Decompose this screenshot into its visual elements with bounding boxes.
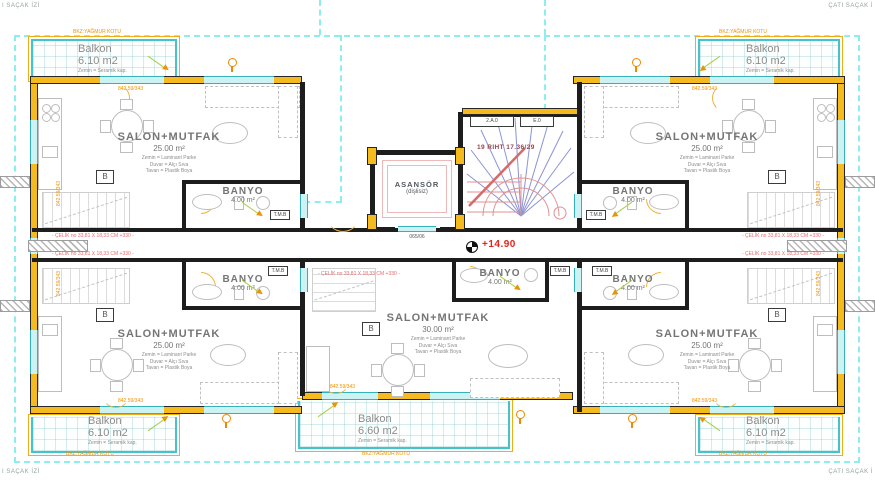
sofa <box>584 86 604 138</box>
closet-tag: T.M.B <box>270 210 290 220</box>
rain-note: BKZ:YAĞMUR KOTU <box>73 29 121 35</box>
wall-pillar <box>367 214 377 230</box>
window <box>204 406 274 414</box>
room-notes: Zemin = Laminant ParkeDuvar = Alçı SıvaT… <box>84 352 254 372</box>
dining-table <box>382 354 414 386</box>
balcony-label-bottom-center: Balkon6.60 m2Zemin = Seramik kap. <box>358 414 407 444</box>
window <box>30 120 38 164</box>
window <box>30 330 38 374</box>
room-area: 25.00 m² <box>622 341 792 350</box>
window <box>837 330 845 374</box>
stove-burner <box>42 104 51 113</box>
stove-burner <box>826 113 835 122</box>
elevation-label: +14.90 <box>482 239 516 250</box>
balcony-door-window <box>710 76 774 84</box>
balcony-label-bottom-left: Balkon6.10 m2Zemin = Seramik kap. <box>88 416 137 446</box>
wall-pillar <box>367 147 377 165</box>
downpipe-icon <box>628 414 637 423</box>
stove-burner <box>826 104 835 113</box>
steel-note: - ÇELİK no 33,81 X 18,33 CM +330 - <box>742 233 824 239</box>
bathroom-label-top-right: BANYO4.00 m² <box>593 186 673 204</box>
stove-burner <box>42 113 51 122</box>
sofa <box>278 86 298 138</box>
bathroom-wall <box>685 262 689 310</box>
kitchen-sink <box>817 324 833 336</box>
exterior-wall <box>462 108 582 115</box>
sofa <box>470 378 560 398</box>
bathroom-wall <box>182 180 186 232</box>
stove-burner <box>51 104 60 113</box>
rain-note: BKZ:YAĞMUR KOTU <box>719 451 767 457</box>
chair <box>391 386 404 397</box>
bathroom-wall <box>545 262 549 302</box>
bathroom-window <box>300 194 308 218</box>
balcony-label-bottom-right: Balkon6.10 m2Zemin = Seramik kap. <box>746 416 795 446</box>
bathroom-wall <box>577 306 689 310</box>
sofa <box>278 352 298 404</box>
bathroom-wall <box>452 298 549 302</box>
balcony-door-window <box>710 406 774 414</box>
room-name: SALON+MUTFAK <box>622 328 792 340</box>
window-dim: 842.59/343 <box>692 398 717 404</box>
kitchen-counter <box>306 346 330 392</box>
rain-note: BKZ:YAĞMUR KOTU <box>719 29 767 35</box>
bathroom-label-bottom-right: BANYO4.00 m² <box>593 274 673 292</box>
eave-stub-line <box>544 0 546 35</box>
wall-dim: 842.59/343 <box>816 271 822 296</box>
window-dim: 842.59/343 <box>118 398 143 404</box>
balcony-door-window <box>100 406 164 414</box>
bathroom-window <box>300 268 308 292</box>
chair <box>120 99 133 110</box>
corridor-wall <box>32 228 843 232</box>
downpipe-icon <box>516 410 525 419</box>
eave-label: I SAÇAK İZİ <box>2 3 40 9</box>
balcony-label-top-right: Balkon6.10 m2Zemin = Seramik kap. <box>746 44 795 74</box>
room-label-salon-bottom-left: SALON+MUTFAK 25.00 m² Zemin = Laminant P… <box>84 328 254 372</box>
balcony-door-window <box>100 76 164 84</box>
b-box: B <box>96 170 114 184</box>
eave-notch-line <box>544 35 546 110</box>
stove-burner <box>817 104 826 113</box>
kitchen-sink <box>42 324 58 336</box>
room-notes: Zemin = Laminant ParkeDuvar = Alçı SıvaT… <box>622 352 792 372</box>
door-tag: E.0 <box>520 116 554 127</box>
chair <box>110 381 123 392</box>
bathroom-window <box>574 268 582 292</box>
stair-direction-line <box>314 280 373 300</box>
stove-burner <box>51 113 60 122</box>
main-staircase <box>465 118 575 228</box>
bathroom-wall <box>182 306 305 310</box>
room-label-salon-top-left: SALON+MUTFAK 25.00 m² Zemin = Laminant P… <box>84 131 254 175</box>
room-notes: Zemin = Laminant ParkeDuvar = Alçı SıvaT… <box>622 155 792 175</box>
hatched-ledge <box>845 176 875 188</box>
bathroom-wall <box>577 180 689 184</box>
eave-stub-line <box>319 0 321 35</box>
closet-tag: T.M.B <box>592 266 612 276</box>
eave-label: ÇATI SAÇAK İ <box>828 3 873 9</box>
balcony-label-top-left: Balkon6.10 m2Zemin = Seramik kap. <box>78 44 127 74</box>
room-label-salon-bottom-right: SALON+MUTFAK 25.00 m² Zemin = Laminant P… <box>622 328 792 372</box>
steel-note: - ÇELİK no 33,81 X 18,33 CM +330 - <box>318 271 400 277</box>
window <box>204 76 274 84</box>
sofa <box>584 352 604 404</box>
chair <box>414 364 425 377</box>
wall-pillar <box>455 214 465 230</box>
kitchen-sink <box>817 146 833 158</box>
window-dim: 842.59/343 <box>330 384 355 390</box>
downpipe-icon <box>632 58 641 67</box>
hatched-ledge <box>0 300 30 312</box>
elevator-name: ASANSÖR <box>382 180 452 189</box>
window <box>600 76 670 84</box>
stove-burner <box>817 113 826 122</box>
wall-pillar <box>455 147 465 165</box>
b-box: B <box>768 170 786 184</box>
room-label-salon-top-right: SALON+MUTFAK 25.00 m² Zemin = Laminant P… <box>622 131 792 175</box>
benchmark-icon <box>466 241 478 253</box>
hatched-ledge <box>845 300 875 312</box>
window <box>837 120 845 164</box>
window-dim: 842.59/343 <box>692 86 717 92</box>
rain-note: BKZ:YAĞMUR KOTU <box>66 451 114 457</box>
steel-note: - ÇELİK no 33,81 X 18,33 CM +330 - <box>52 251 134 257</box>
elevator-sub: (dişlisiz) <box>382 189 452 195</box>
wall-dim: 842.59/343 <box>816 181 822 206</box>
room-area: 25.00 m² <box>84 341 254 350</box>
bathroom-label-bottom-left: BANYO4.00 m² <box>203 274 283 292</box>
chair <box>742 99 755 110</box>
door-swing <box>326 198 360 232</box>
stair-note: 19 RIHT 17.36/29 <box>477 144 535 151</box>
steel-note: - ÇELİK no 33,81 X 18,33 CM +330 - <box>742 251 824 257</box>
downpipe-icon <box>228 58 237 67</box>
chair <box>371 364 382 377</box>
hatched-ledge <box>0 176 30 188</box>
corridor-wall <box>32 258 843 262</box>
window <box>600 406 670 414</box>
elevator-label: ASANSÖR (dişlisiz) <box>382 180 452 195</box>
chair <box>748 381 761 392</box>
floor-plan-canvas: I SAÇAK İZİ ÇATI SAÇAK İ I SAÇAK İZİ ÇAT… <box>0 0 875 490</box>
wall-dim: 842.59/343 <box>56 181 62 206</box>
kitchen-sink <box>42 146 58 158</box>
rain-note: BKZ:YAĞMUR KOTU <box>362 451 410 457</box>
window-dim: 842.59/343 <box>118 86 143 92</box>
eave-notch-line <box>340 35 342 202</box>
elevator-wall <box>370 150 463 155</box>
room-area: 25.00 m² <box>622 144 792 153</box>
closet-tag: T.M.B <box>268 266 288 276</box>
room-name: SALON+MUTFAK <box>622 131 792 143</box>
room-name: SALON+MUTFAK <box>84 328 254 340</box>
b-box: B <box>96 308 114 322</box>
bathroom-wall <box>685 180 689 232</box>
bathroom-window <box>574 194 582 218</box>
closet-tag: T.M.B <box>550 266 570 276</box>
room-area: 25.00 m² <box>84 144 254 153</box>
door-tag: 2.A.0 <box>470 116 514 127</box>
elevator-dim-label: 065/06 <box>397 234 437 240</box>
downpipe-icon <box>222 414 231 423</box>
eave-label: ÇATI SAÇAK İ <box>828 469 873 475</box>
steel-note: - ÇELİK no 33,81 X 18,33 CM +330 - <box>52 233 134 239</box>
wall-dim: 842.59/343 <box>56 271 62 296</box>
room-notes: Zemin = Laminant ParkeDuvar = Alçı SıvaT… <box>353 336 523 356</box>
b-box: B <box>362 322 380 336</box>
closet-tag: T.M.B <box>586 210 606 220</box>
b-box: B <box>768 308 786 322</box>
room-name: SALON+MUTFAK <box>84 131 254 143</box>
eave-label: I SAÇAK İZİ <box>2 469 40 475</box>
elevator-door <box>398 226 436 232</box>
